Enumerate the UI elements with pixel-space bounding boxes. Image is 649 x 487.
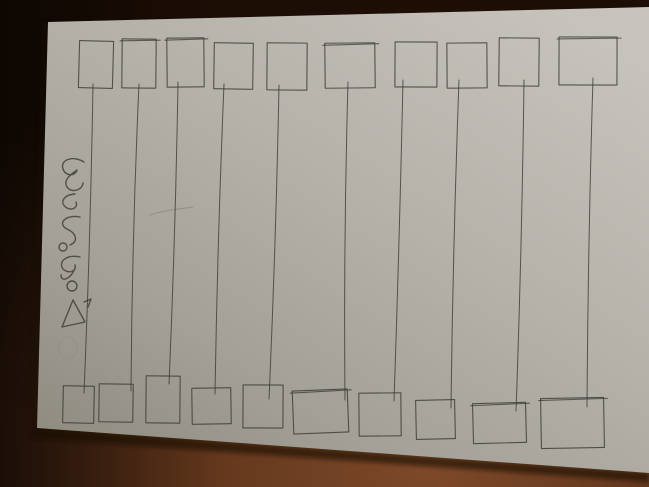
paper-sheet [37, 7, 649, 473]
worksheet-photo: Photograph of a sheet of paper on a wood… [0, 0, 649, 487]
photo-svg [0, 0, 649, 487]
